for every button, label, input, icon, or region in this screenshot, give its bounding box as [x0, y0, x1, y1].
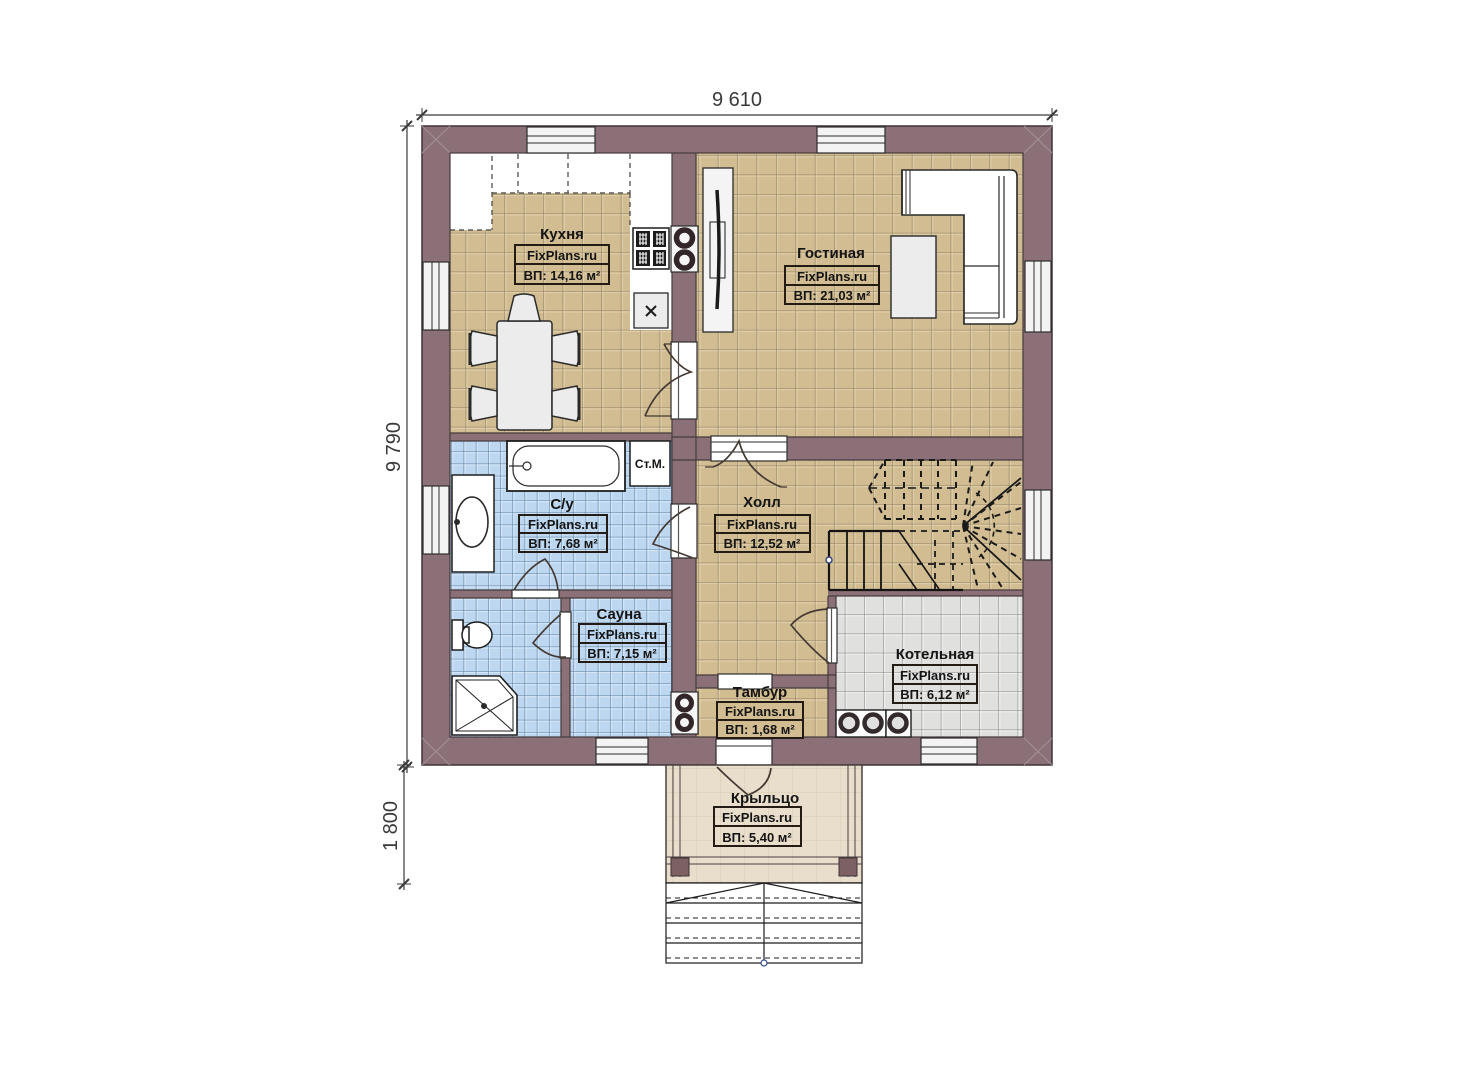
- svg-text:FixPlans.ru: FixPlans.ru: [527, 248, 597, 263]
- svg-text:9 790: 9 790: [383, 422, 405, 472]
- svg-text:FixPlans.ru: FixPlans.ru: [727, 517, 797, 532]
- svg-text:Гостиная: Гостиная: [797, 245, 865, 262]
- svg-text:ВП: 14,16 м²: ВП: 14,16 м²: [524, 268, 601, 283]
- svg-text:ВП: 7,15 м²: ВП: 7,15 м²: [587, 646, 657, 661]
- svg-text:Тамбур: Тамбур: [733, 684, 787, 701]
- svg-text:FixPlans.ru: FixPlans.ru: [722, 810, 792, 825]
- svg-text:Крыльцо: Крыльцо: [731, 790, 799, 807]
- svg-text:ВП: 1,68 м²: ВП: 1,68 м²: [725, 722, 795, 737]
- svg-text:Сауна: Сауна: [596, 606, 642, 623]
- svg-text:ВП: 5,40 м²: ВП: 5,40 м²: [722, 830, 792, 845]
- svg-text:FixPlans.ru: FixPlans.ru: [900, 668, 970, 683]
- svg-text:ВП: 21,03 м²: ВП: 21,03 м²: [794, 288, 871, 303]
- svg-text:ВП: 7,68 м²: ВП: 7,68 м²: [528, 536, 598, 551]
- svg-text:Котельная: Котельная: [896, 646, 975, 663]
- svg-text:FixPlans.ru: FixPlans.ru: [725, 704, 795, 719]
- svg-text:FixPlans.ru: FixPlans.ru: [797, 269, 867, 284]
- svg-text:Холл: Холл: [743, 494, 781, 511]
- svg-text:Ст.М.: Ст.М.: [635, 457, 665, 471]
- svg-text:ВП: 6,12 м²: ВП: 6,12 м²: [900, 687, 970, 702]
- svg-text:1 800: 1 800: [380, 801, 402, 851]
- svg-text:FixPlans.ru: FixPlans.ru: [587, 627, 657, 642]
- svg-text:9 610: 9 610: [712, 89, 762, 111]
- svg-text:С/у: С/у: [550, 496, 574, 513]
- svg-text:Кухня: Кухня: [540, 226, 584, 243]
- svg-text:FixPlans.ru: FixPlans.ru: [528, 517, 598, 532]
- svg-text:ВП: 12,52 м²: ВП: 12,52 м²: [724, 536, 801, 551]
